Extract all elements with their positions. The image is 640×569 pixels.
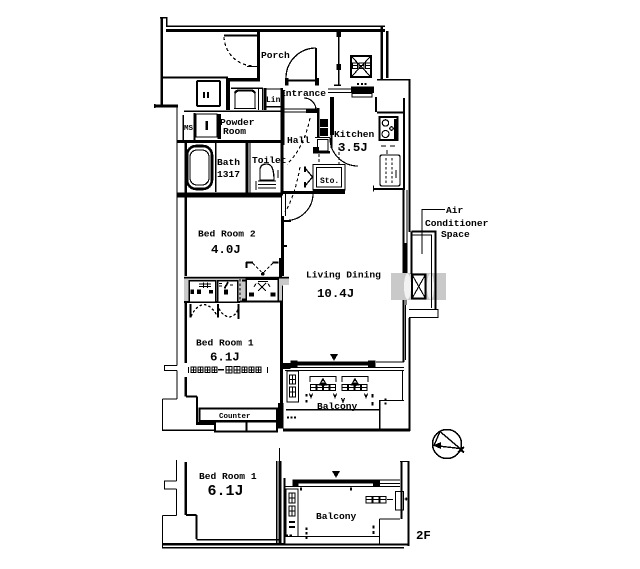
svg-text:Toilet: Toilet: [252, 155, 287, 166]
svg-text:Bed Room 2: Bed Room 2: [198, 229, 256, 240]
svg-text:3.5J: 3.5J: [338, 141, 368, 155]
svg-text:1317: 1317: [217, 169, 240, 180]
svg-text:Porch: Porch: [261, 50, 290, 61]
svg-text:Bath: Bath: [217, 157, 240, 168]
svg-text:Counter: Counter: [219, 413, 251, 421]
svg-text:2F: 2F: [416, 529, 431, 543]
svg-text:MS: MS: [184, 125, 194, 133]
svg-text:Kitchen: Kitchen: [334, 129, 375, 140]
svg-text:Room: Room: [223, 126, 246, 137]
svg-text:Space: Space: [441, 229, 470, 240]
svg-text:6.1J: 6.1J: [210, 351, 240, 365]
svg-text:Air: Air: [446, 205, 464, 216]
svg-text:Lin: Lin: [266, 96, 281, 105]
svg-text:Living Dining: Living Dining: [306, 270, 381, 281]
svg-text:Sto.: Sto.: [320, 177, 339, 186]
svg-text:Entrance: Entrance: [280, 88, 326, 99]
svg-text:Conditioner: Conditioner: [425, 218, 489, 229]
svg-text:Balcony: Balcony: [316, 511, 357, 522]
svg-text:10.4J: 10.4J: [317, 287, 354, 301]
svg-text:Balcony: Balcony: [317, 401, 358, 412]
svg-text:Bed Room 1: Bed Room 1: [199, 471, 257, 482]
svg-text:Hall: Hall: [287, 135, 310, 146]
svg-text:4.0J: 4.0J: [211, 243, 241, 257]
svg-text:6.1J: 6.1J: [208, 483, 244, 500]
svg-text:Bed Room 1: Bed Room 1: [196, 338, 254, 349]
